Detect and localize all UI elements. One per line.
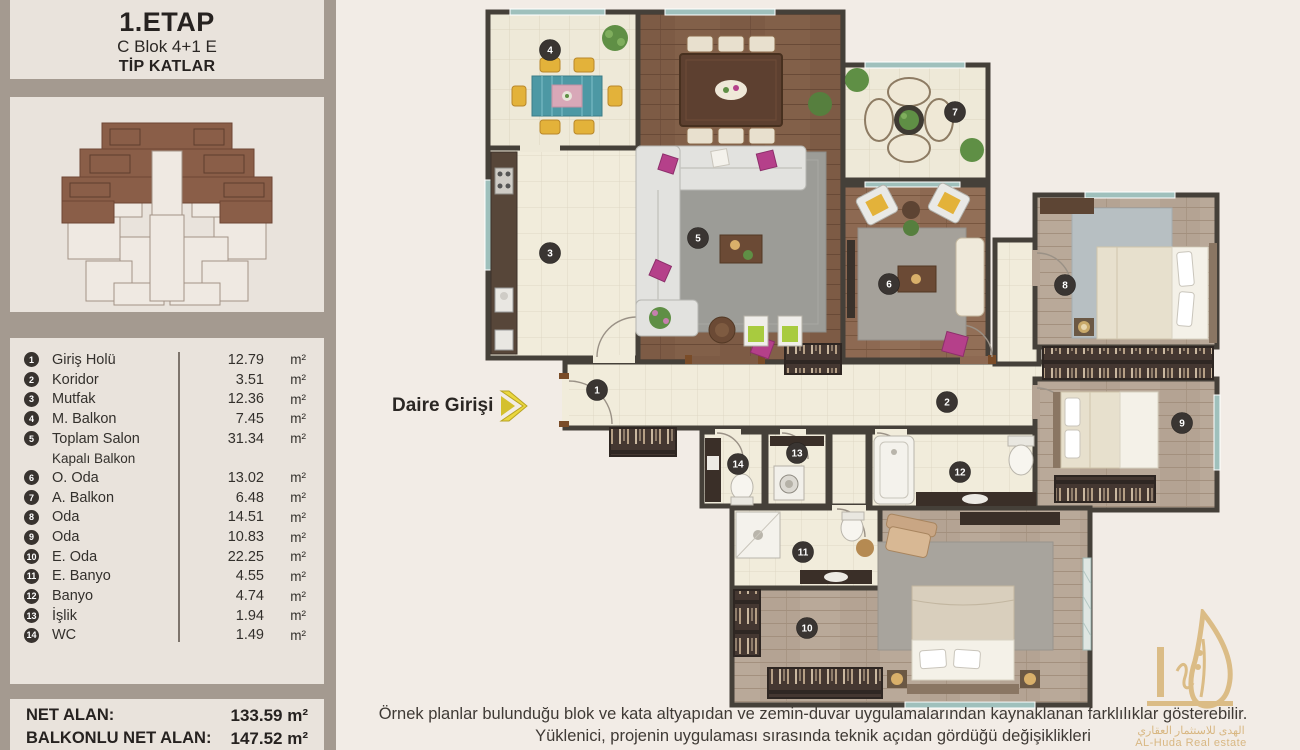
room-badge-number: 10 — [801, 624, 813, 635]
room-badge-number: 8 — [1062, 281, 1068, 292]
legend-room-area: 22.25 — [202, 549, 264, 565]
legend-row: 4M. Balkon7.45m² — [24, 409, 314, 429]
legend-area-unit: m² — [264, 530, 314, 545]
legend-room-area: 4.74 — [202, 588, 264, 604]
room-badge-number: 1 — [594, 386, 600, 397]
net-area-value: 133.59 m² — [231, 704, 309, 727]
legend-number-badge: 5 — [24, 431, 39, 446]
legend-divider — [178, 352, 180, 642]
salon-dining-set — [680, 36, 782, 144]
room-badge-number: 12 — [954, 468, 966, 479]
balcony-net-area-label: BALKONLU NET ALAN: — [26, 727, 211, 750]
room-badge-number: 7 — [952, 108, 958, 119]
watermark: الهدى للاستثمار العقاري AL-Huda Real est… — [1116, 609, 1266, 750]
legend-room-area: 13.02 — [202, 470, 264, 486]
legend-number-badge: 3 — [24, 392, 39, 407]
legend-area-unit: m² — [264, 372, 314, 387]
legend-row: 13İşlik1.94m² — [24, 606, 314, 626]
net-area-row: NET ALAN: 133.59 m² — [26, 704, 308, 727]
balcony-net-area-row: BALKONLU NET ALAN: 147.52 m² — [26, 727, 308, 750]
legend-room-area: 7.45 — [202, 411, 264, 427]
wardrobe-eoda-left — [734, 590, 760, 656]
legend-area-unit: m² — [264, 510, 314, 525]
legend-number-badge: 6 — [24, 470, 39, 485]
legend-area-unit: m² — [264, 490, 314, 505]
stage-title: 1.ETAP — [10, 7, 324, 37]
legend-room-area: 12.36 — [202, 391, 264, 407]
closed-balcony-chairs — [709, 316, 802, 346]
legend-number-badge: 2 — [24, 372, 39, 387]
o-oda-furniture — [847, 182, 984, 357]
legend-row: 10E. Oda22.25m² — [24, 547, 314, 567]
legend-area-unit: m² — [264, 589, 314, 604]
entry-label: Daire Girişi — [392, 390, 529, 422]
legend-room-area: 1.49 — [202, 627, 264, 643]
room-badge-number: 9 — [1179, 419, 1185, 430]
watermark-arabic-text: الهدى للاستثمار العقاري — [1116, 725, 1266, 737]
room-badge-number: 11 — [798, 548, 809, 559]
legend-number-badge: 8 — [24, 510, 39, 525]
legend-room-area: 1.94 — [202, 608, 264, 624]
legend-area-unit: m² — [264, 352, 314, 367]
block-title: C Blok 4+1 E — [10, 37, 324, 57]
legend-number-badge: 4 — [24, 411, 39, 426]
legend-row: 12Banyo4.74m² — [24, 586, 314, 606]
legend-number-badge: 10 — [24, 549, 39, 564]
legend-number-badge: 13 — [24, 608, 39, 623]
room-legend-panel: 1Giriş Holü12.79m²2Koridor3.51m²3Mutfak1… — [10, 338, 324, 684]
legend-row: 3Mutfak12.36m² — [24, 389, 314, 409]
legend-row: 2Koridor3.51m² — [24, 370, 314, 390]
room-badge-number: 5 — [695, 234, 701, 245]
watermark-latin-text: AL-Huda Real estate — [1116, 737, 1266, 750]
legend-room-area: 4.55 — [202, 568, 264, 584]
legend-area-unit: m² — [264, 569, 314, 584]
entry-label-text: Daire Girişi — [392, 395, 493, 417]
legend-area-unit: m² — [264, 608, 314, 623]
wardrobe-oda8 — [1043, 347, 1213, 379]
legend-row: 11E. Banyo4.55m² — [24, 567, 314, 587]
room-badge-number: 14 — [732, 460, 744, 471]
main-area: 1234567891011121314 Daire Girişi Örnek p… — [336, 0, 1300, 750]
sidebar: 1.ETAP C Blok 4+1 E TİP KATLAR — [0, 0, 336, 750]
legend-area-unit: m² — [264, 411, 314, 426]
wardrobe-eoda-bottom — [768, 668, 882, 698]
plant-icon — [808, 92, 832, 116]
corridor-bath — [830, 432, 868, 506]
legend-room-area: 3.51 — [202, 372, 264, 388]
key-plan-drawing — [10, 97, 324, 312]
legend-room-area: 14.51 — [202, 509, 264, 525]
legend-subrow: Kapalı Balkon — [24, 448, 314, 468]
kitchen-counter — [491, 152, 517, 354]
totals-panel: NET ALAN: 133.59 m² BALKONLU NET ALAN: 1… — [10, 699, 324, 750]
legend-row: 5Toplam Salon31.34m² — [24, 429, 314, 449]
net-area-label: NET ALAN: — [26, 704, 114, 727]
wardrobe-oda9 — [1055, 476, 1155, 502]
legend-number-badge: 14 — [24, 628, 39, 643]
room-badge-number: 4 — [547, 46, 553, 57]
watermark-logo-icon — [1143, 609, 1239, 725]
legend-number-badge: 1 — [24, 352, 39, 367]
legend-number-badge: 11 — [24, 569, 39, 584]
legend-room-area: 10.83 — [202, 529, 264, 545]
entry-arrow-icon — [499, 390, 529, 422]
building-key-plan — [10, 97, 324, 312]
plant-icon — [602, 25, 628, 51]
plan-title-panel: 1.ETAP C Blok 4+1 E TİP KATLAR — [10, 0, 324, 79]
floor-plan-drawing: 1234567891011121314 — [360, 0, 1240, 710]
floor-plan: 1234567891011121314 — [360, 0, 1240, 710]
legend-area-unit: m² — [264, 549, 314, 564]
legend-room-name: Kapalı Balkon — [52, 451, 314, 466]
legend-number-badge: 7 — [24, 490, 39, 505]
legend-number-badge: 12 — [24, 589, 39, 604]
legend-rows: 1Giriş Holü12.79m²2Koridor3.51m²3Mutfak1… — [10, 348, 324, 645]
room-badge-number: 2 — [944, 398, 950, 409]
legend-room-area: 6.48 — [202, 490, 264, 506]
legend-row: 9Oda10.83m² — [24, 527, 314, 547]
room-badge-number: 6 — [886, 280, 892, 291]
legend-room-area: 12.79 — [202, 352, 264, 368]
room-badge-number: 3 — [547, 249, 553, 260]
legend-row: 8Oda14.51m² — [24, 508, 314, 528]
legend-area-unit: m² — [264, 431, 314, 446]
wardrobe-hall — [610, 428, 676, 456]
legend-area-unit: m² — [264, 628, 314, 643]
legend-area-unit: m² — [264, 470, 314, 485]
wardrobe-salon — [785, 344, 841, 374]
legend-row: 14WC1.49m² — [24, 626, 314, 646]
legend-row: 6O. Oda13.02m² — [24, 468, 314, 488]
legend-number-badge: 9 — [24, 530, 39, 545]
legend-area-unit: m² — [264, 392, 314, 407]
balcony-net-area-value: 147.52 m² — [231, 727, 309, 750]
legend-row: 1Giriş Holü12.79m² — [24, 350, 314, 370]
floors-title: TİP KATLAR — [10, 57, 324, 77]
oda9-furniture — [1053, 392, 1158, 468]
legend-room-area: 31.34 — [202, 431, 264, 447]
legend-row: 7A. Balkon6.48m² — [24, 488, 314, 508]
room-badge-number: 13 — [791, 449, 803, 460]
